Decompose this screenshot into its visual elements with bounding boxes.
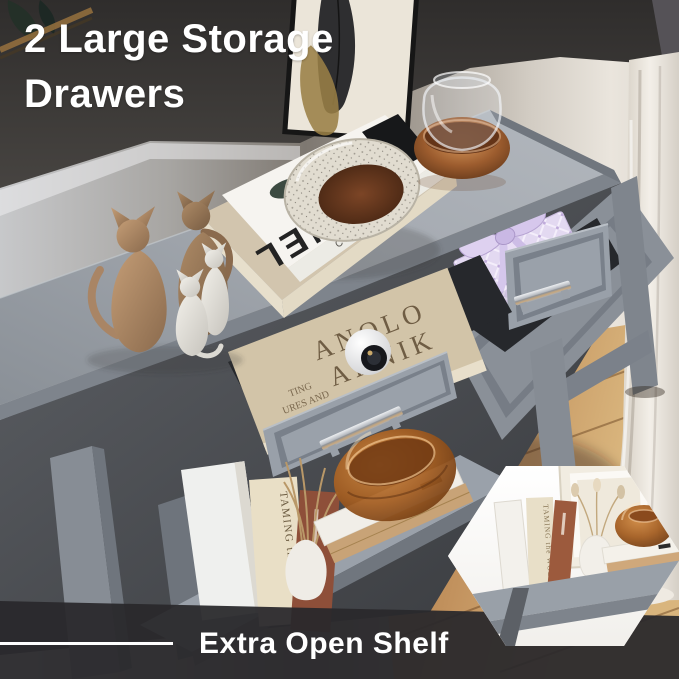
headline: 2 Large Storage Drawers: [24, 12, 334, 122]
caption-divider-line: [0, 642, 173, 645]
camera-ball: [345, 329, 391, 375]
product-image: ANOLO AHNIK TING URES AND SESSIONS: [0, 0, 679, 679]
headline-line1: 2 Large Storage: [24, 12, 334, 67]
headline-line2: Drawers: [24, 67, 334, 122]
caption-text: Extra Open Shelf: [199, 627, 449, 661]
